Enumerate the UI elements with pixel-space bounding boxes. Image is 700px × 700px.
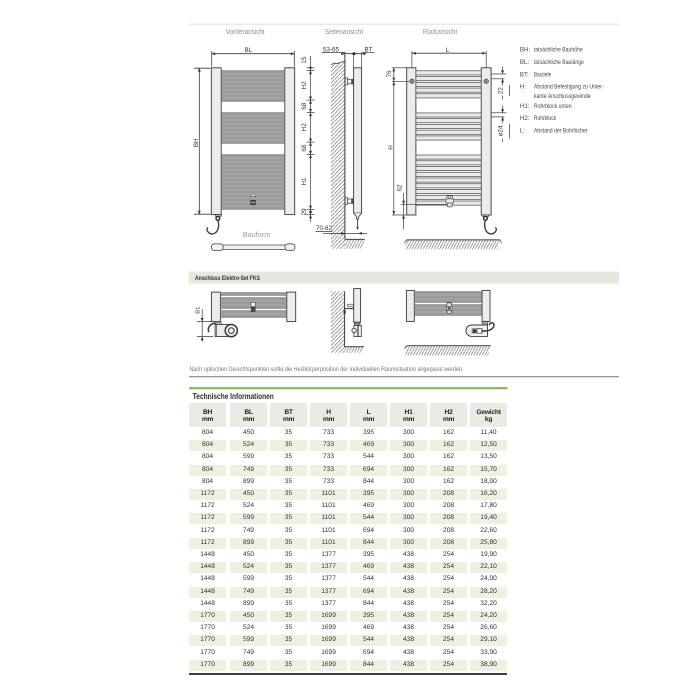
svg-text:Vorderansicht: Vorderansicht: [226, 29, 265, 36]
svg-text:tatsächliche Baulänge: tatsächliche Baulänge: [534, 59, 584, 66]
svg-text:Rohrblock: Rohrblock: [534, 115, 557, 122]
svg-text:Seitenansicht: Seitenansicht: [325, 29, 363, 36]
svg-text:L: L: [446, 47, 450, 54]
svg-text:76: 76: [386, 70, 393, 78]
svg-text:BH:: BH:: [520, 47, 531, 54]
svg-text:BL:: BL:: [520, 59, 530, 66]
svg-text:H2: H2: [301, 81, 308, 90]
svg-text:H1: H1: [301, 177, 308, 186]
svg-text:Abstand der Bohrlöcher: Abstand der Bohrlöcher: [534, 128, 588, 135]
svg-text:68: 68: [301, 144, 308, 152]
svg-text:BT:: BT:: [520, 71, 529, 78]
svg-text:L:: L:: [520, 128, 525, 135]
svg-text:15: 15: [301, 56, 308, 64]
svg-text:H:: H:: [520, 84, 526, 91]
svg-text:BL: BL: [245, 47, 253, 54]
svg-text:Rohrblock unten: Rohrblock unten: [534, 103, 572, 110]
svg-text:62: 62: [396, 184, 403, 192]
svg-text:Bauform: Bauform: [243, 230, 271, 239]
svg-text:H1:: H1:: [520, 103, 530, 110]
svg-text:Anschluss Elektro-Set FKS: Anschluss Elektro-Set FKS: [195, 275, 260, 282]
svg-text:68: 68: [301, 102, 308, 110]
svg-text:29: 29: [301, 208, 308, 216]
svg-text:kante Anschlussgewinde: kante Anschlussgewinde: [534, 93, 591, 100]
svg-text:H2: H2: [301, 123, 308, 132]
svg-text:H: H: [388, 145, 395, 150]
svg-text:Rückansicht: Rückansicht: [423, 29, 457, 36]
svg-text:Bautiefe: Bautiefe: [534, 71, 552, 78]
svg-text:ø24: ø24: [498, 125, 505, 136]
svg-text:tatsächliche Bauhöhe: tatsächliche Bauhöhe: [534, 47, 583, 54]
svg-text:B1: B1: [195, 307, 201, 314]
svg-text:Nach optischen Gesichtspunkten: Nach optischen Gesichtspunkten sollte di…: [190, 366, 464, 373]
svg-text:Abstand Befestigung zu Unter-: Abstand Befestigung zu Unter-: [534, 84, 604, 91]
svg-text:H2:: H2:: [520, 115, 530, 122]
svg-text:Technische Informationen: Technische Informationen: [193, 392, 274, 401]
svg-text:22: 22: [498, 87, 505, 95]
svg-text:BH: BH: [193, 138, 200, 147]
